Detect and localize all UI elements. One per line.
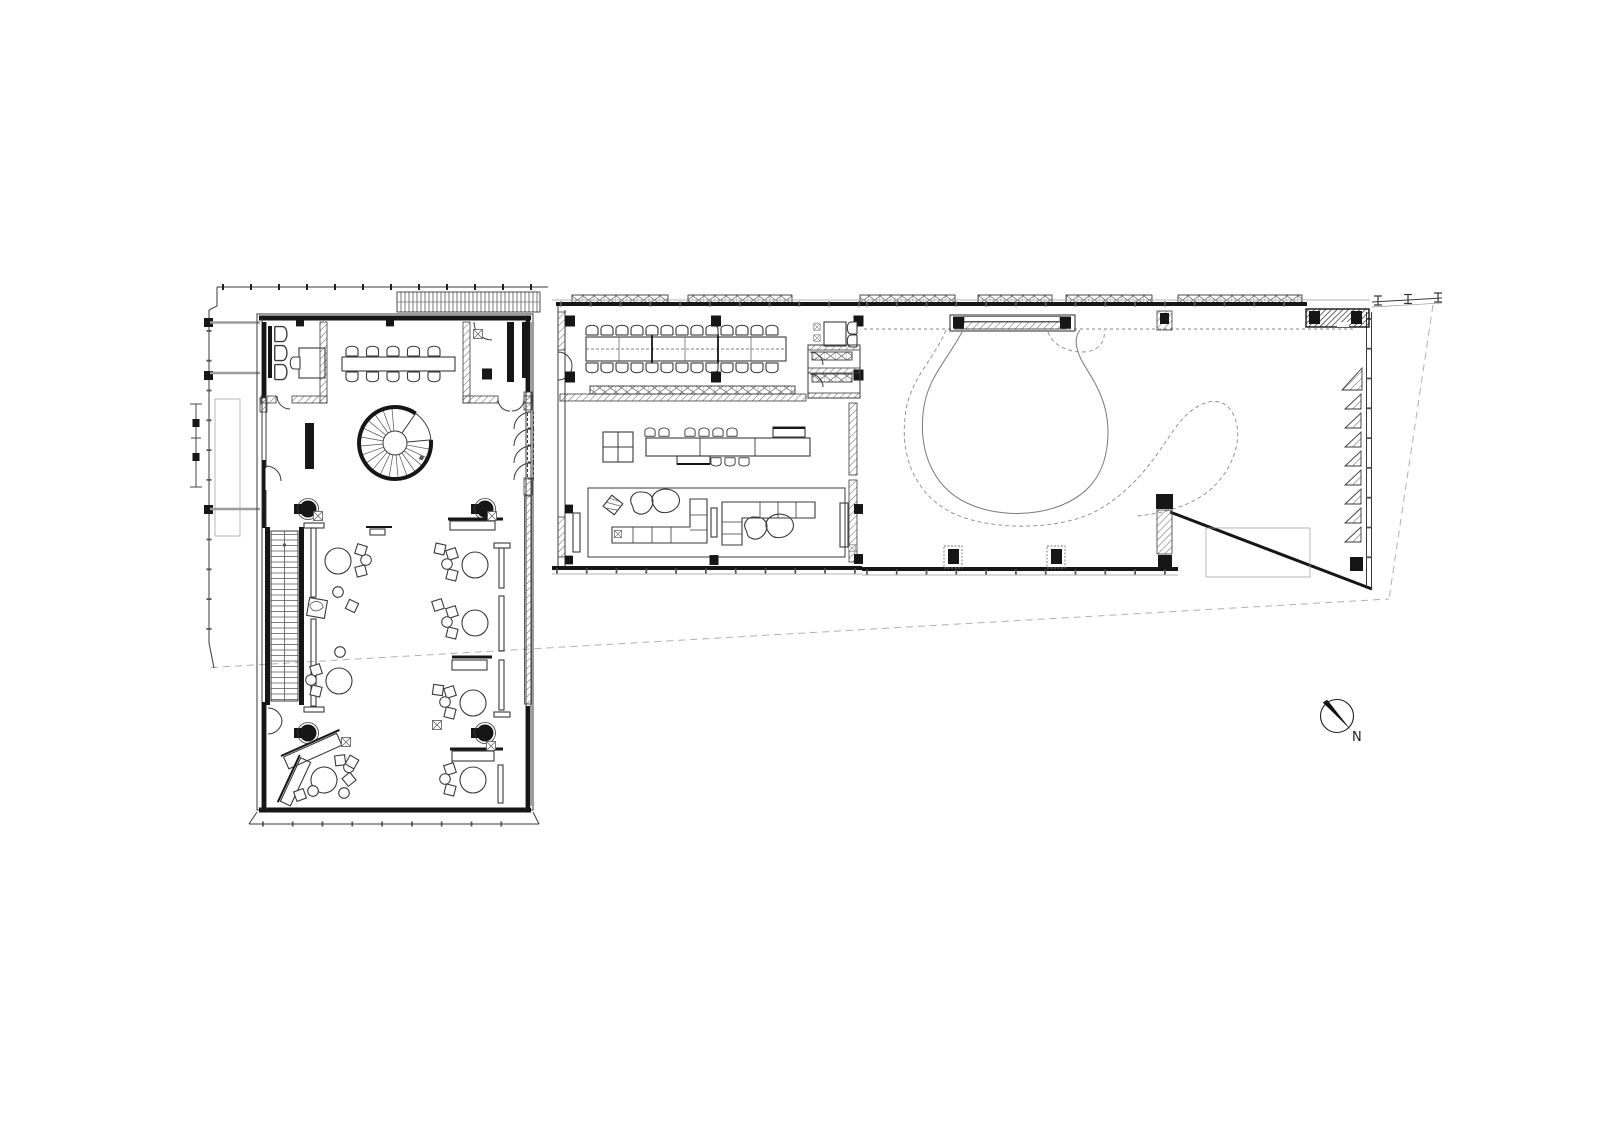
north-glazing-strips (572, 295, 1302, 303)
west-canopy (204, 287, 548, 668)
canteen-wing (552, 300, 864, 574)
sofa-left (612, 499, 707, 543)
wardrobe-bench (950, 315, 1075, 331)
property-line-south (211, 599, 1389, 668)
exterior-stair-north (397, 292, 540, 312)
bar-stools-bottom (711, 458, 749, 466)
column (296, 318, 304, 327)
east-roof-edge (1372, 293, 1442, 307)
office-room (268, 326, 325, 380)
louver-stairs (1342, 368, 1362, 542)
armchair (275, 365, 287, 380)
terrace-pad (1206, 528, 1310, 577)
lounge (565, 488, 855, 565)
bar-stools-top (645, 428, 737, 436)
sofa-right (722, 502, 815, 545)
column (1047, 546, 1065, 568)
north-label: N (1352, 730, 1362, 745)
column (482, 369, 492, 380)
column (944, 546, 962, 568)
coffee-tables-left (631, 489, 680, 514)
event-hall (862, 300, 1372, 589)
spiral-staircase (359, 407, 431, 479)
diagonal-south-wall (1170, 512, 1372, 589)
dining-chairs-bottom (586, 363, 778, 373)
hall-shell (862, 300, 1372, 589)
armchair (275, 327, 287, 342)
site-works (190, 287, 1442, 668)
desk-chair (290, 357, 300, 369)
north-pier (1157, 311, 1172, 330)
lounge-stool (603, 495, 623, 515)
floor-plan-sheet: N (0, 0, 1600, 1131)
floor-inlay-blob (904, 330, 1237, 526)
side-table (840, 503, 848, 547)
floor-mark (474, 330, 483, 339)
left-wing (249, 314, 539, 824)
canteen-hall (560, 316, 860, 402)
shelf (573, 513, 580, 552)
bar-counter (646, 438, 810, 456)
floor-plan-drawing: N (0, 0, 1600, 1131)
main-staircase (265, 527, 304, 705)
hall-columns (944, 494, 1363, 571)
service-tray (677, 456, 710, 464)
conference-table (342, 357, 455, 371)
round-column (471, 723, 496, 744)
north-compass: N (1321, 700, 1362, 746)
property-line-east (1389, 305, 1433, 599)
armchair (275, 346, 287, 361)
wc-block (808, 345, 860, 398)
side-table (814, 322, 857, 347)
wall-bar (305, 423, 314, 469)
bar-zone (603, 427, 810, 466)
meeting-rooms-band (261, 322, 532, 411)
side-table (711, 508, 717, 537)
scale-bar (190, 404, 202, 487)
conference-chairs-top (346, 346, 440, 356)
conference-chairs-bottom (346, 372, 440, 382)
counter-top-unit (773, 427, 805, 437)
north-needle (1323, 700, 1351, 730)
dining-chairs-top (586, 325, 778, 335)
plant-box (307, 598, 328, 619)
column (386, 318, 394, 327)
